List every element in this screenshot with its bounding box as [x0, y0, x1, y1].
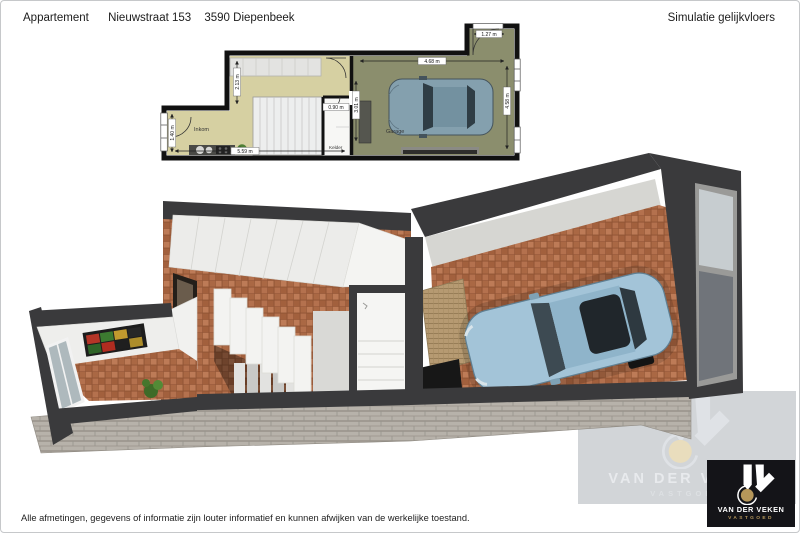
dim-inkom-depth: 2.13 m — [235, 74, 241, 89]
dim-garage-depth: 4.58 m — [505, 93, 511, 108]
floorplan-2d: Inkom Garage Kelder 4.68 m — [161, 24, 520, 159]
plan2d-label-inkom: Inkom — [194, 127, 209, 133]
plan2d-kitchen-counter — [189, 145, 235, 155]
plan2d-wardrobe — [230, 58, 321, 76]
agency-logo-subtitle: VASTGOED — [707, 516, 795, 521]
plan2d-garage-door-stored — [401, 147, 479, 154]
floorplan-graphics: Inkom Garage Kelder 4.68 m — [1, 1, 800, 533]
plan2d-workbench — [359, 101, 371, 143]
agency-logo-icon — [725, 463, 777, 505]
door-window — [699, 189, 733, 271]
plan2d-car — [389, 76, 493, 138]
agency-logo-title: VAN DER VEKEN — [707, 505, 795, 514]
dim-garage-door: 1.27 m — [481, 32, 496, 38]
floorplan-3d — [29, 153, 743, 453]
garage-left-wall — [405, 237, 423, 399]
floorplan-page: Appartement Nieuwstraat 153 3590 Diepenb… — [0, 0, 800, 533]
plan2d-stairs — [253, 97, 323, 155]
disclaimer: Alle afmetingen, gegevens of informatie … — [21, 513, 470, 523]
dim-kelder-width: 0.90 m — [328, 105, 343, 111]
hall-concrete — [313, 311, 353, 397]
dim-garage-length: 4.68 m — [424, 59, 439, 65]
dim-entry-width: 1.40 m — [170, 125, 176, 140]
door-panel — [699, 271, 733, 381]
dim-garage-left-depth: 3.01 m — [354, 97, 360, 112]
dim-inkom-length: 5.59 m — [237, 149, 252, 155]
plan2d-label-garage: Garage — [386, 129, 404, 135]
plan2d-label-kelder: Kelder — [329, 145, 343, 150]
agency-logo: VAN DER VEKEN VASTGOED — [707, 460, 795, 527]
